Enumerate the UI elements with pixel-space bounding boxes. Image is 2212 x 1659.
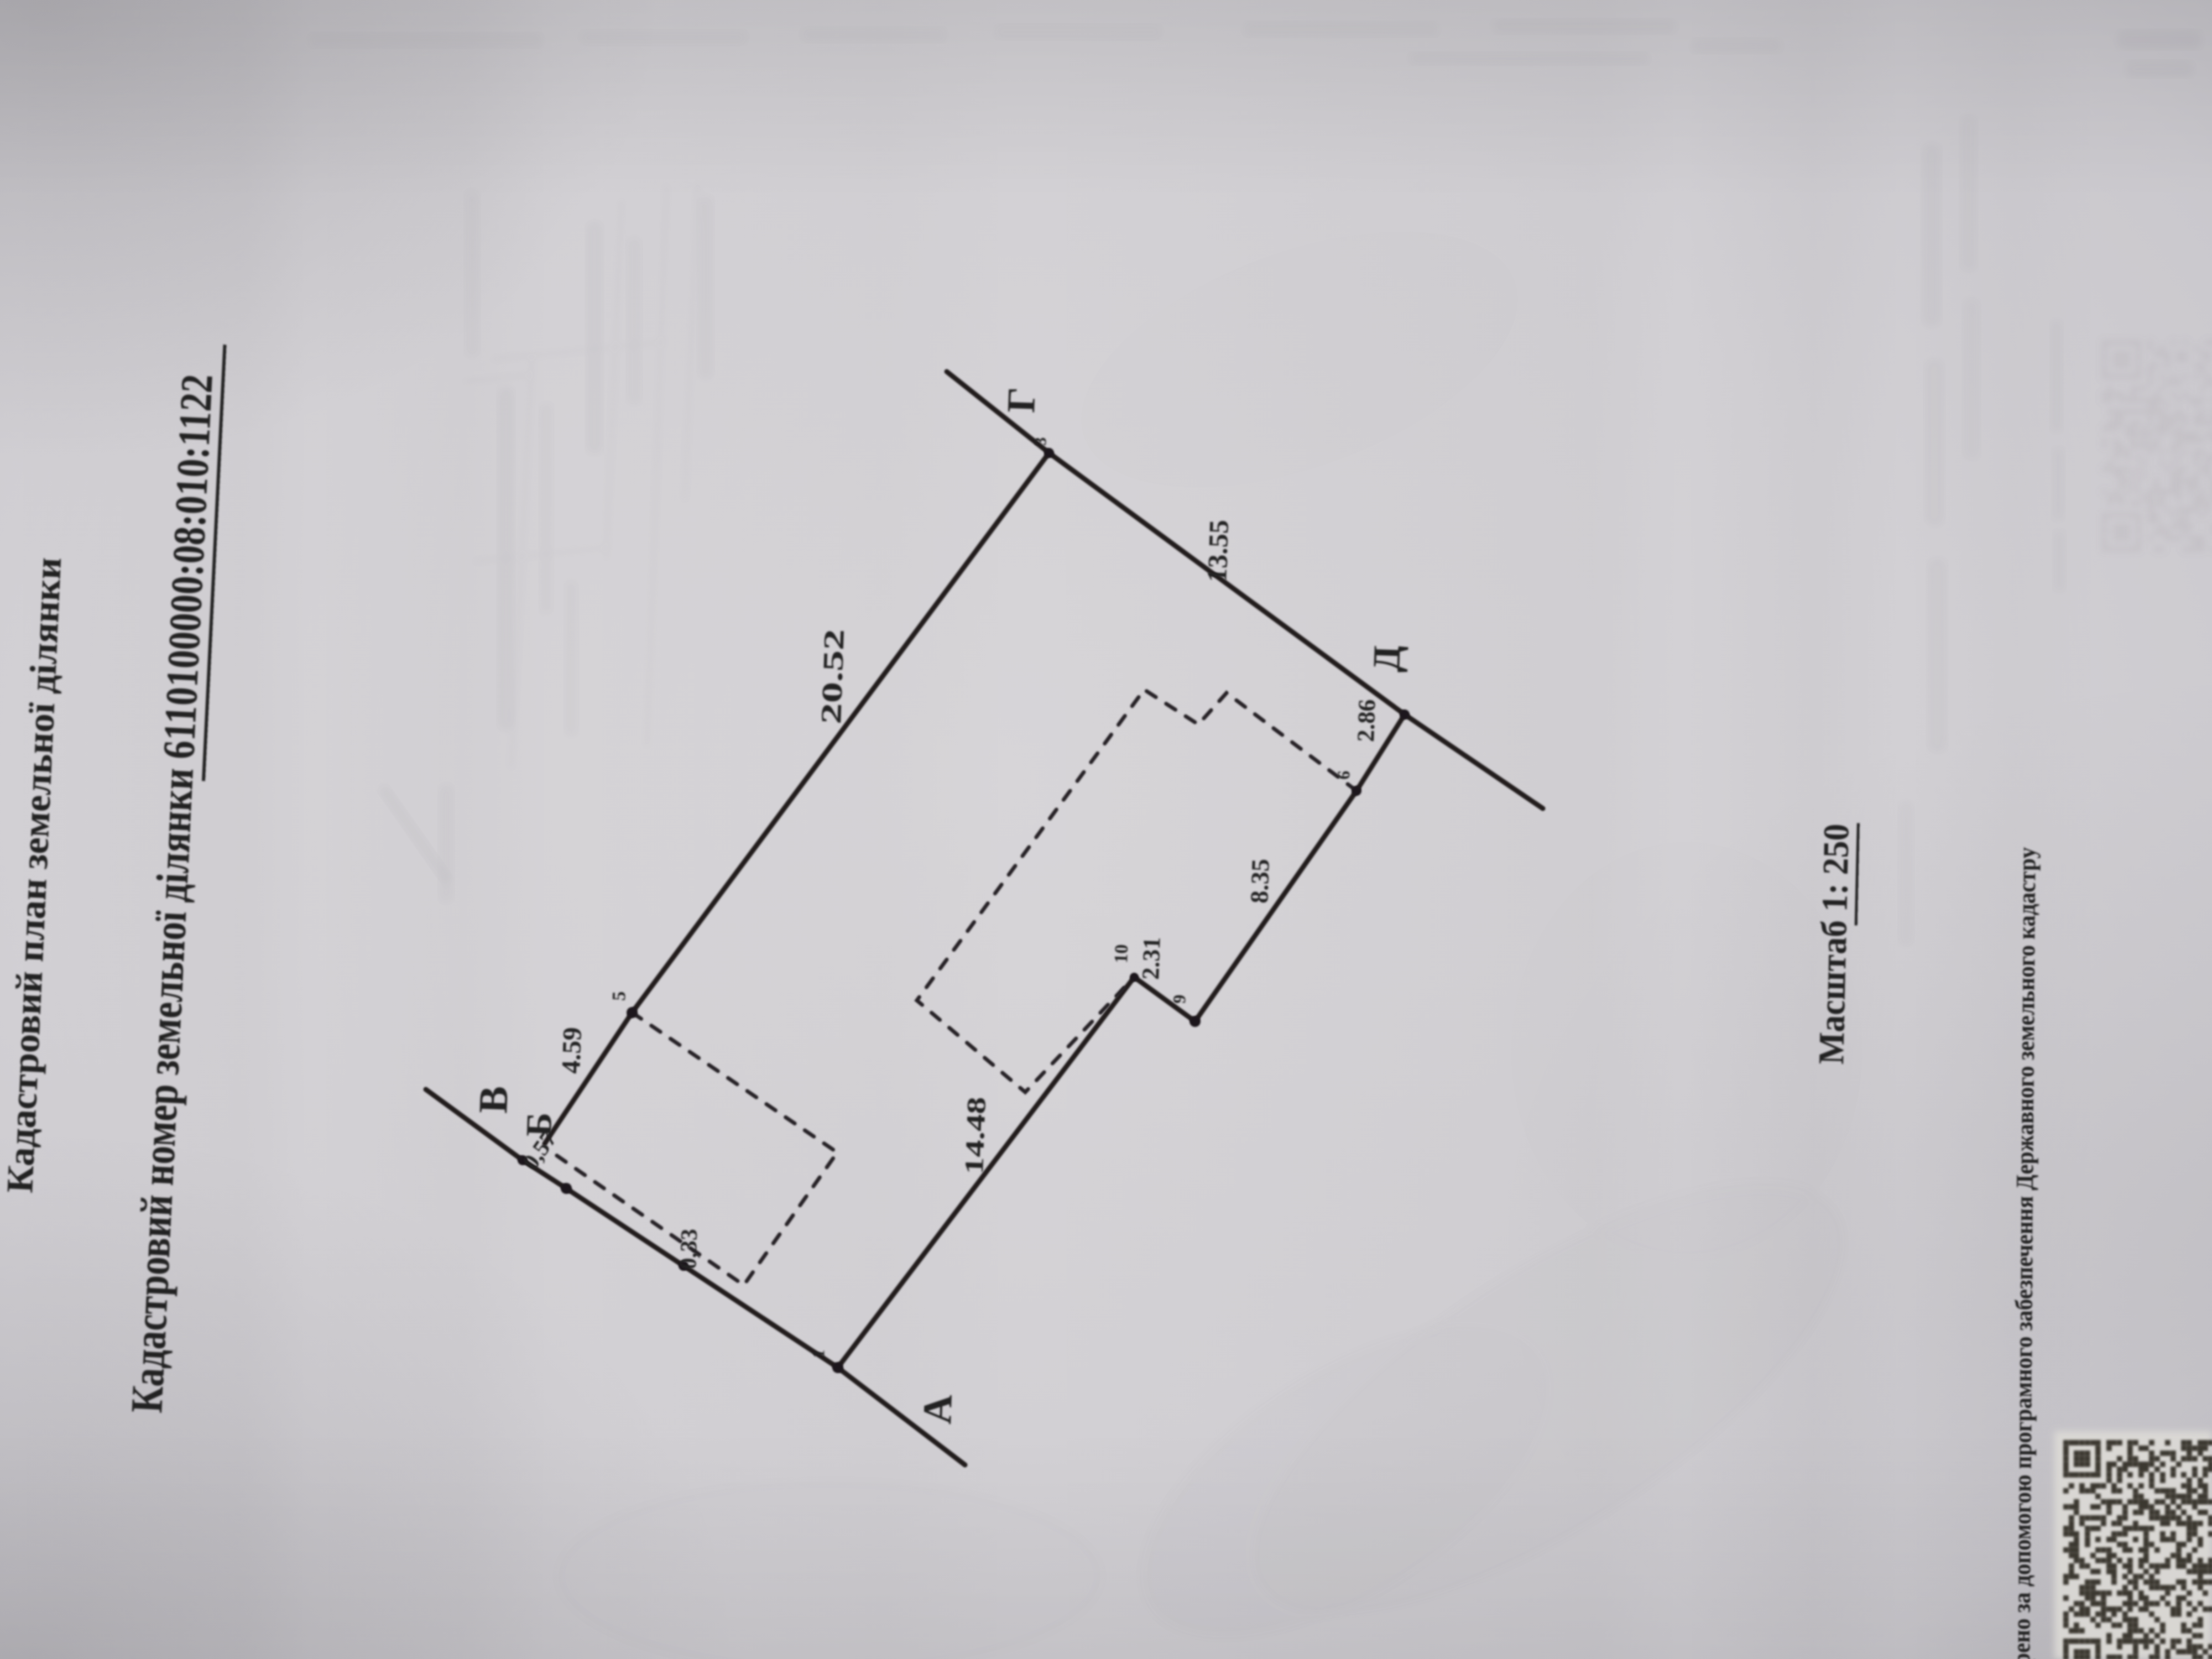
svg-text:2.31: 2.31 (1137, 937, 1166, 980)
svg-text:6: 6 (1333, 770, 1354, 780)
svg-text:1: 1 (810, 1349, 828, 1358)
svg-text:2.86: 2.86 (1352, 699, 1381, 743)
svg-text:Г: Г (999, 387, 1044, 414)
svg-text:14.48: 14.48 (959, 1097, 992, 1175)
svg-text:3: 3 (1031, 437, 1050, 446)
svg-text:8.35: 8.35 (1245, 858, 1275, 904)
svg-text:4.59: 4.59 (556, 1027, 587, 1074)
svg-text:10: 10 (1111, 944, 1132, 963)
svg-text:20.52: 20.52 (816, 629, 851, 725)
svg-text:9: 9 (1169, 994, 1190, 1004)
svg-text:рено за допомогою програмного: рено за допомогою програмного забезпечен… (2008, 847, 2041, 1659)
svg-text:13.55: 13.55 (1201, 519, 1234, 582)
svg-text:Д: Д (1365, 645, 1409, 673)
svg-text:0,33: 0,33 (676, 1228, 703, 1270)
svg-text:А: А (915, 1394, 961, 1425)
svg-text:Масштаб 1: 250: Масштаб 1: 250 (1811, 823, 1857, 1065)
svg-text:5: 5 (609, 991, 630, 1001)
svg-text:В: В (471, 1085, 517, 1114)
